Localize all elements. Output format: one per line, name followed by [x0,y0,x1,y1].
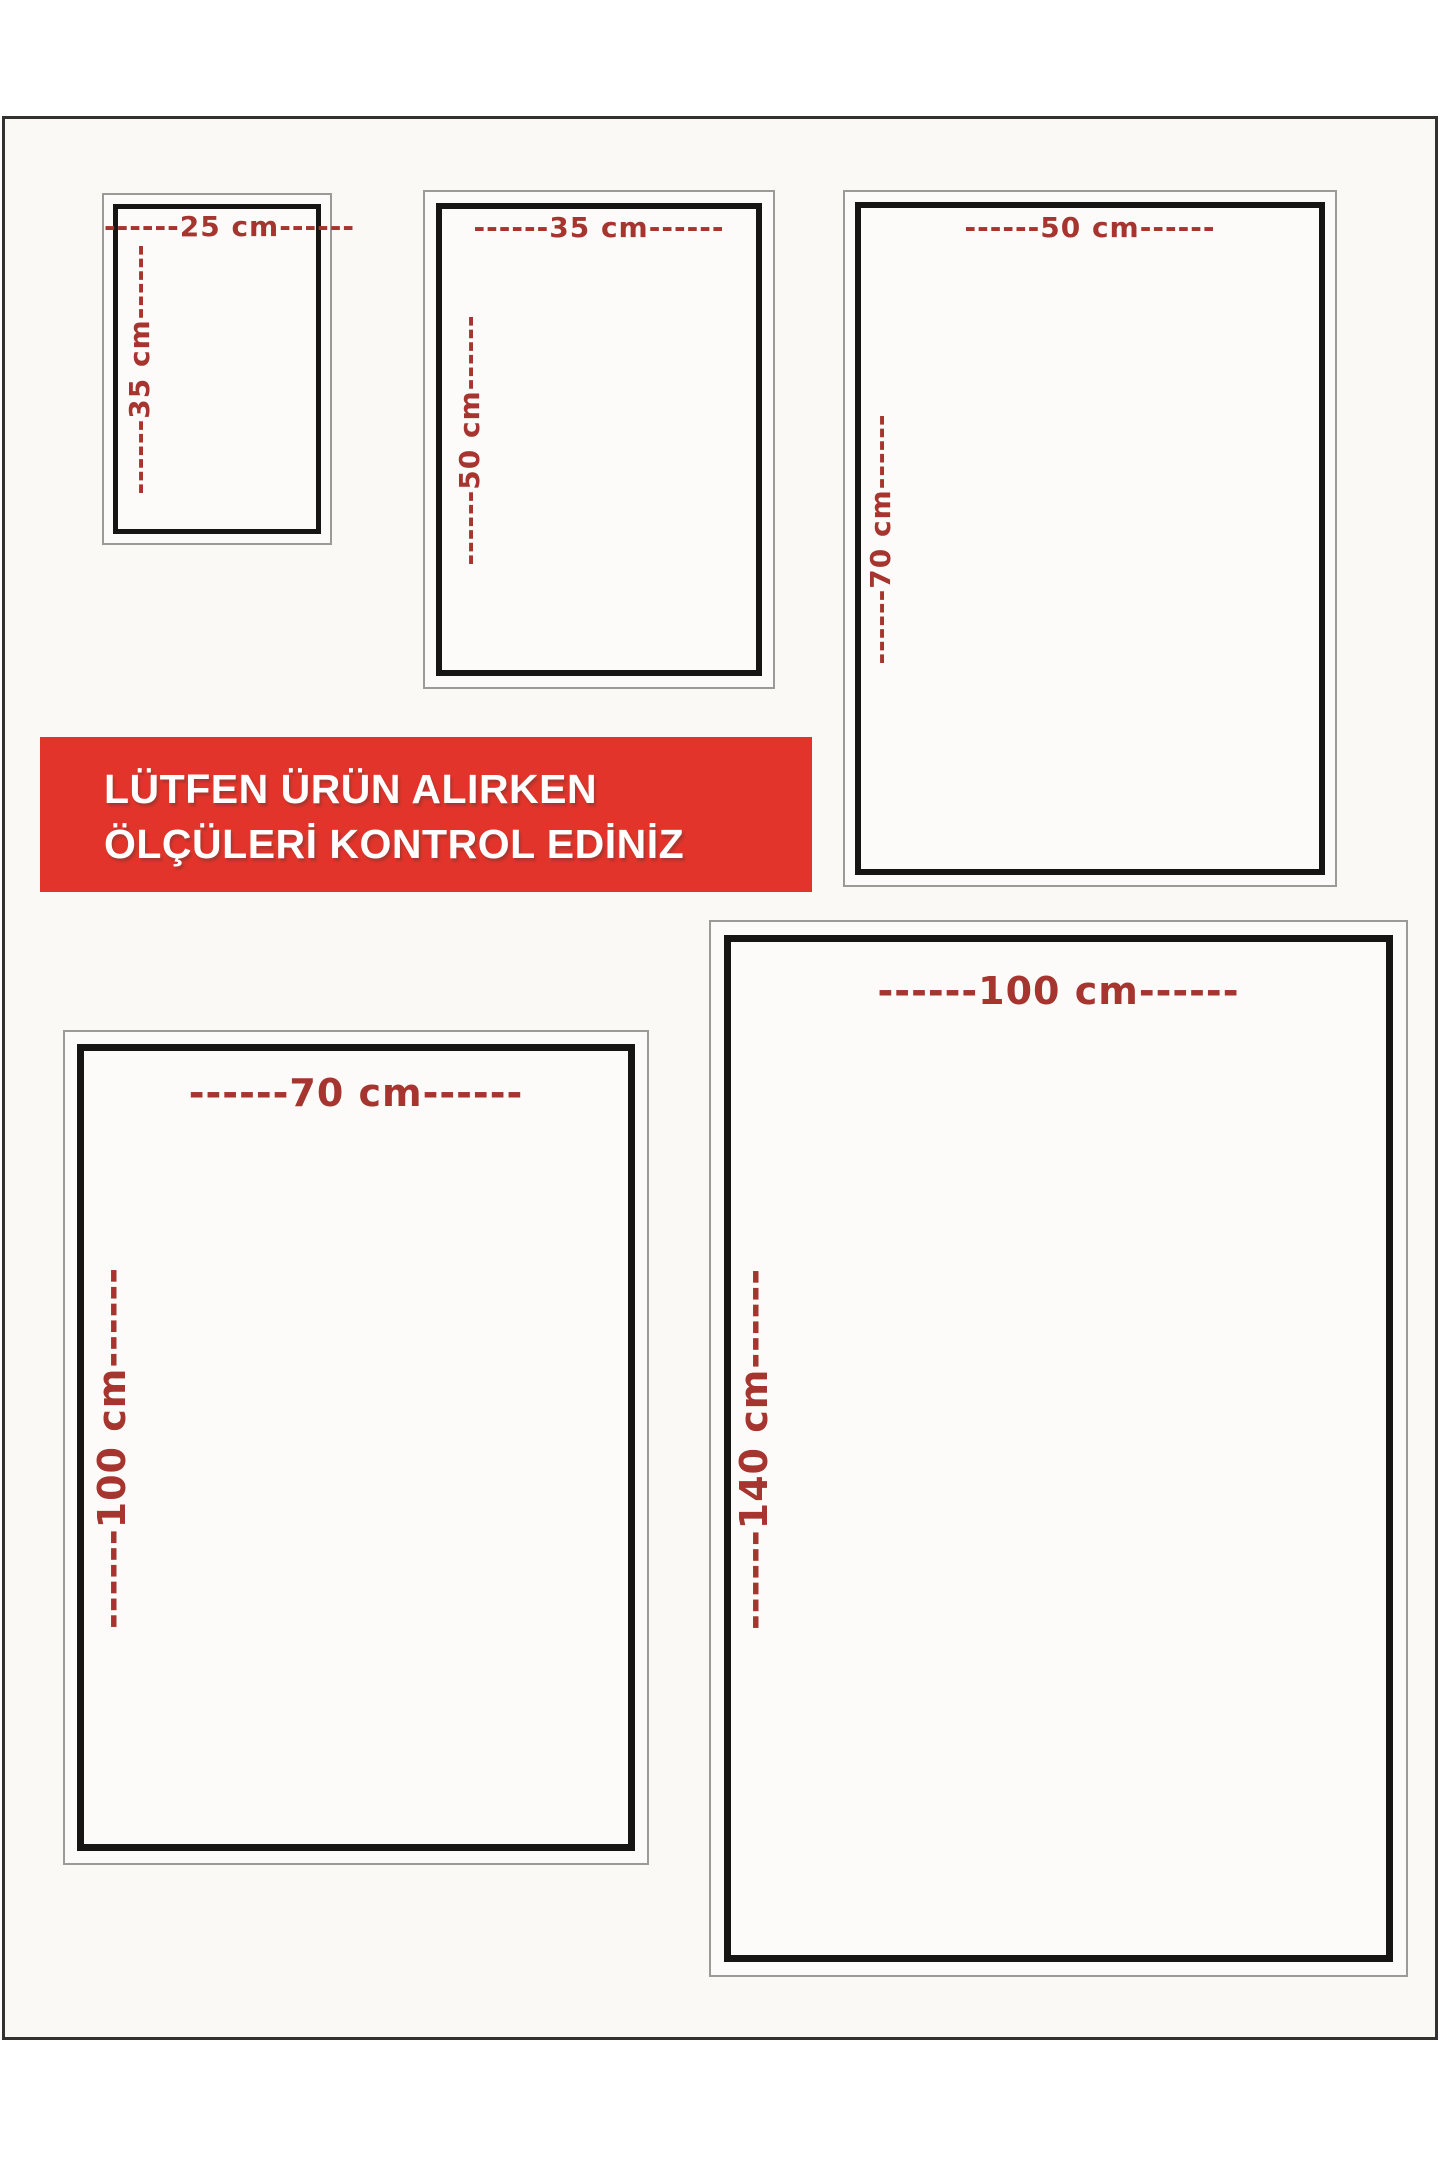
height-dimension-label: ------70 cm------ [867,413,895,664]
width-dimension-label: ------70 cm------ [65,1074,647,1112]
size-box-100x140-inner-frame [724,935,1393,1962]
size-box-100x140: ------100 cm------ ------140 cm------ [709,920,1408,1977]
size-box-70x100: ------70 cm------ ------100 cm------ [63,1030,649,1865]
size-box-25x35: ------25 cm------ ------35 cm------ [102,193,332,545]
width-dimension-label: ------35 cm------ [425,214,773,242]
notice-line-2: ÖLÇÜLERİ KONTROL EDİNİZ [104,817,812,872]
size-box-70x100-inner-frame [77,1044,635,1851]
width-dimension-label: ------100 cm------ [711,972,1406,1010]
size-box-50x70: ------50 cm------ ------70 cm------ [843,190,1337,887]
height-dimension-label: ------100 cm------ [93,1267,131,1629]
height-dimension-label: ------140 cm------ [735,1268,773,1630]
height-dimension-label: ------35 cm------ [126,244,154,495]
width-dimension-label: ------25 cm------ [104,213,330,241]
size-box-35x50: ------35 cm------ ------50 cm------ [423,190,775,689]
notice-line-1: LÜTFEN ÜRÜN ALIRKEN [104,762,812,817]
width-dimension-label: ------50 cm------ [845,214,1335,242]
height-dimension-label: ------50 cm------ [456,314,484,565]
size-check-notice-banner: LÜTFEN ÜRÜN ALIRKEN ÖLÇÜLERİ KONTROL EDİ… [40,737,812,892]
size-box-50x70-inner-frame [855,202,1325,875]
